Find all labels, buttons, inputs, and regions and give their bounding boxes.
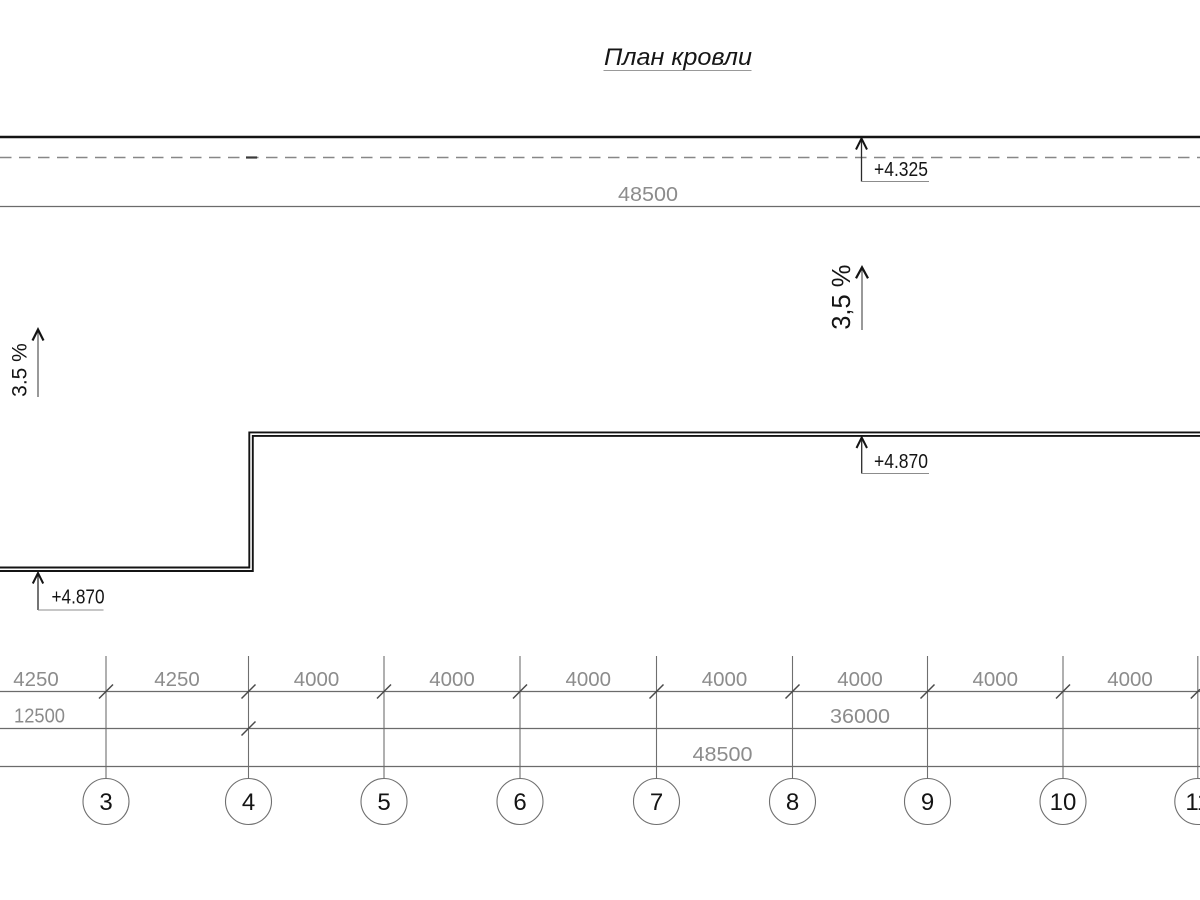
- svg-text:48500: 48500: [618, 184, 678, 206]
- svg-text:+4.325: +4.325: [874, 159, 928, 181]
- svg-text:+4.870: +4.870: [874, 451, 928, 473]
- svg-text:48500: 48500: [693, 744, 753, 766]
- svg-text:8: 8: [786, 789, 799, 816]
- svg-text:7: 7: [650, 789, 663, 816]
- svg-text:3: 3: [99, 789, 112, 816]
- svg-text:4250: 4250: [154, 669, 200, 691]
- svg-text:4000: 4000: [837, 669, 883, 691]
- svg-text:4000: 4000: [702, 669, 748, 691]
- svg-text:4250: 4250: [13, 669, 59, 691]
- svg-text:3,5 %: 3,5 %: [828, 265, 856, 330]
- svg-text:10: 10: [1050, 789, 1077, 816]
- svg-text:3.5 %: 3.5 %: [9, 343, 32, 397]
- svg-text:5: 5: [377, 789, 390, 816]
- svg-text:+4.870: +4.870: [52, 587, 105, 609]
- svg-text:12500: 12500: [14, 706, 65, 728]
- svg-text:11: 11: [1185, 789, 1200, 816]
- svg-text:4000: 4000: [1107, 669, 1153, 691]
- svg-text:4: 4: [242, 789, 255, 816]
- svg-text:4000: 4000: [566, 669, 612, 691]
- svg-text:4000: 4000: [973, 669, 1019, 691]
- svg-text:6: 6: [513, 789, 526, 816]
- svg-text:4000: 4000: [294, 669, 340, 691]
- svg-text:36000: 36000: [830, 706, 890, 728]
- svg-text:9: 9: [921, 789, 934, 816]
- svg-text:4000: 4000: [429, 669, 475, 691]
- svg-text:План кровли: План кровли: [604, 44, 752, 71]
